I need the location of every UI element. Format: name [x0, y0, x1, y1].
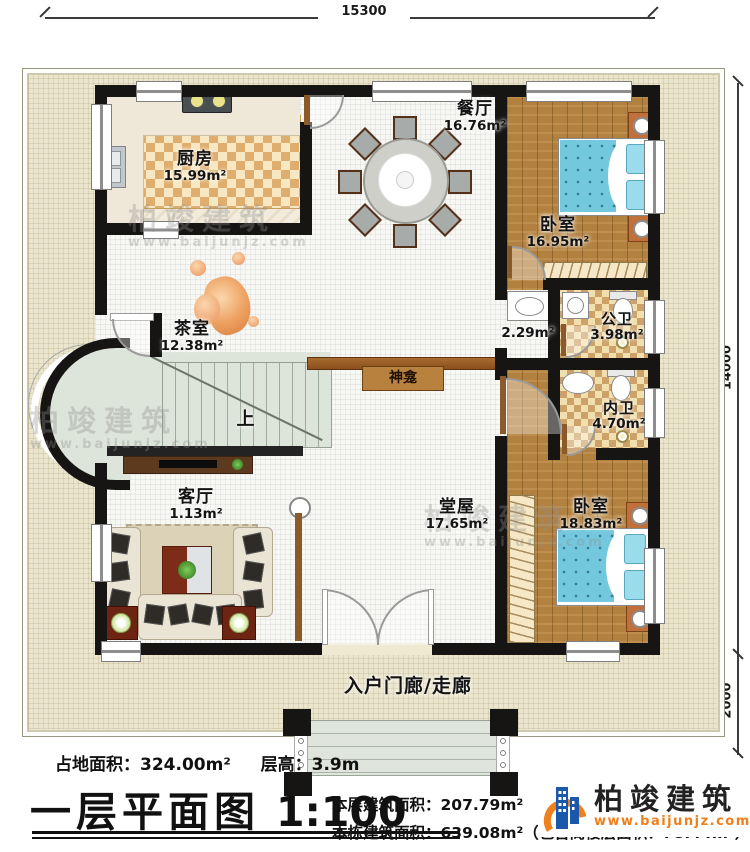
land-area-value: 324.00m² [140, 755, 231, 775]
room-area: 16.95m² [513, 235, 603, 250]
sofa-cushion [242, 532, 265, 555]
label-stairs-up: 上 [228, 410, 264, 430]
room-area: 3.98m² [572, 328, 662, 343]
table-lamp [111, 613, 131, 633]
dining-chair [448, 170, 472, 194]
logo-building-icon [540, 785, 586, 835]
logo-text-block: 柏竣建筑 www.baijunjz.com [594, 785, 750, 828]
side-table [104, 606, 138, 640]
label-bedroom-bottom: 卧室 18.83m² [546, 498, 636, 532]
wall-bath-row [495, 358, 660, 370]
sofa-cushion [191, 603, 213, 625]
room-area: 18.83m² [546, 517, 636, 532]
dining-chair [393, 116, 417, 140]
label-living: 客厅 1.13m² [151, 488, 241, 522]
porch-pillar [283, 709, 311, 736]
wall-inner-bath-bottom [596, 448, 660, 460]
washbasin [515, 297, 544, 316]
window-kitchen-top [136, 81, 182, 102]
window-bedroom-bottom [566, 641, 620, 662]
vanity-counter [507, 291, 551, 321]
tv [159, 460, 217, 468]
label-hall-nook: 2.29m² [493, 326, 563, 341]
plant [232, 459, 243, 470]
label-public-bath: 公卫 3.98m² [572, 311, 662, 342]
window-bedroom-top [526, 81, 632, 102]
plan-title: 一层平面图 [30, 778, 260, 838]
dining-chair [393, 224, 417, 248]
floor-plan-sheet: 15300 14000 2000 [0, 0, 750, 852]
entrance-door-leaf-right [428, 589, 434, 645]
wall-inner-bath-corner [548, 448, 560, 460]
room-area: 4.70m² [574, 417, 664, 432]
building-area-value: 639.08m² [441, 824, 524, 842]
room-name: 卧室 [546, 498, 636, 517]
wall-kitchen-right [300, 122, 312, 235]
porch-pillar [490, 709, 518, 736]
label-porch: 入户门廊/走廊 [300, 676, 516, 697]
room-name: 厨房 [150, 150, 240, 169]
toilet [611, 375, 631, 401]
living-door-leaf [295, 513, 302, 641]
stair-living-divider-wall [107, 446, 303, 456]
room-name: 客厅 [151, 488, 241, 507]
window-living-left [91, 524, 112, 582]
dining-set [338, 116, 468, 244]
room-name: 入户门廊/走廊 [300, 676, 516, 697]
dimension-top-value: 15300 [318, 4, 410, 19]
room-area: 16.76m² [430, 119, 520, 134]
label-inner-bath: 内卫 4.70m² [574, 400, 664, 431]
room-area: 17.65m² [412, 517, 502, 532]
window-kitchen-left [91, 104, 112, 190]
footer-floor-area: 本层建筑面积：207.79m² [332, 793, 523, 815]
decor-dot [248, 316, 259, 327]
label-bedroom-top: 卧室 16.95m² [513, 216, 603, 250]
coffee-table [162, 546, 212, 594]
table-plant [178, 561, 196, 579]
label-tea-room: 茶室 12.38m² [147, 320, 237, 354]
wall-nook-stub2 [495, 348, 507, 358]
table-lamp [229, 613, 249, 633]
room-name: 卧室 [513, 216, 603, 235]
room-area: 2.29m² [493, 326, 563, 341]
wall-hall-bedroom2 [495, 436, 507, 643]
building-area-label: 本栋建筑面积： [332, 824, 441, 842]
shrine-label: 神龛 [389, 370, 417, 386]
floor-area-label: 本层建筑面积： [332, 796, 441, 814]
dining-chair [338, 170, 362, 194]
wall-bedroom-top-bottom [543, 278, 660, 290]
stairs-up-text: 上 [228, 410, 264, 430]
pillow [624, 570, 646, 600]
window-kitchen-bottom [143, 221, 179, 239]
sofa-cushion [243, 561, 265, 583]
inner-bath-basin [562, 372, 594, 394]
wall-kitchen-bottom [95, 223, 312, 235]
sofa-cushion [144, 604, 165, 625]
dimension-tick [647, 6, 658, 17]
window-living-bottom [101, 641, 141, 662]
floor-height-label: 层高： [261, 755, 312, 775]
company-logo: 柏竣建筑 www.baijunjz.com [538, 783, 750, 837]
sofa-cushion [167, 603, 189, 625]
room-name: 公卫 [572, 311, 662, 328]
decor-dot [190, 260, 206, 276]
room-name: 堂屋 [412, 498, 502, 517]
label-kitchen: 厨房 15.99m² [150, 150, 240, 184]
wall-nook-stub [495, 290, 507, 300]
land-area-label: 占地面积： [55, 755, 140, 775]
tv-console [123, 456, 253, 474]
room-area: 12.38m² [147, 339, 237, 354]
floor-area-value: 207.79m² [441, 796, 524, 814]
lazy-susan [396, 171, 414, 189]
logo-website: www.baijunjz.com [594, 815, 750, 828]
wall-bottom-right [432, 643, 660, 655]
label-dining: 餐厅 16.76m² [430, 100, 520, 134]
window-bedroom-top-right [644, 140, 665, 214]
pillow [624, 534, 646, 564]
floor-height-value: 3.9m [312, 755, 360, 775]
decor-dot [232, 252, 245, 265]
label-main-hall: 堂屋 17.65m² [412, 498, 502, 532]
room-name: 茶室 [147, 320, 237, 339]
room-area: 15.99m² [150, 169, 240, 184]
side-table [222, 606, 256, 640]
room-name: 餐厅 [430, 100, 520, 119]
window-bedroom-bottom-right [644, 548, 665, 624]
entrance-door-leaf-left [322, 589, 328, 645]
shrine-table: 神龛 [362, 366, 444, 391]
dimension-tick [39, 6, 50, 17]
room-area: 1.13m² [151, 507, 241, 522]
footer-land-area: 占地面积：324.00m² 层高：3.9m [55, 750, 359, 775]
room-name: 内卫 [574, 400, 664, 417]
logo-company-name: 柏竣建筑 [594, 785, 750, 814]
wardrobe-bottom-bedroom [509, 495, 535, 643]
